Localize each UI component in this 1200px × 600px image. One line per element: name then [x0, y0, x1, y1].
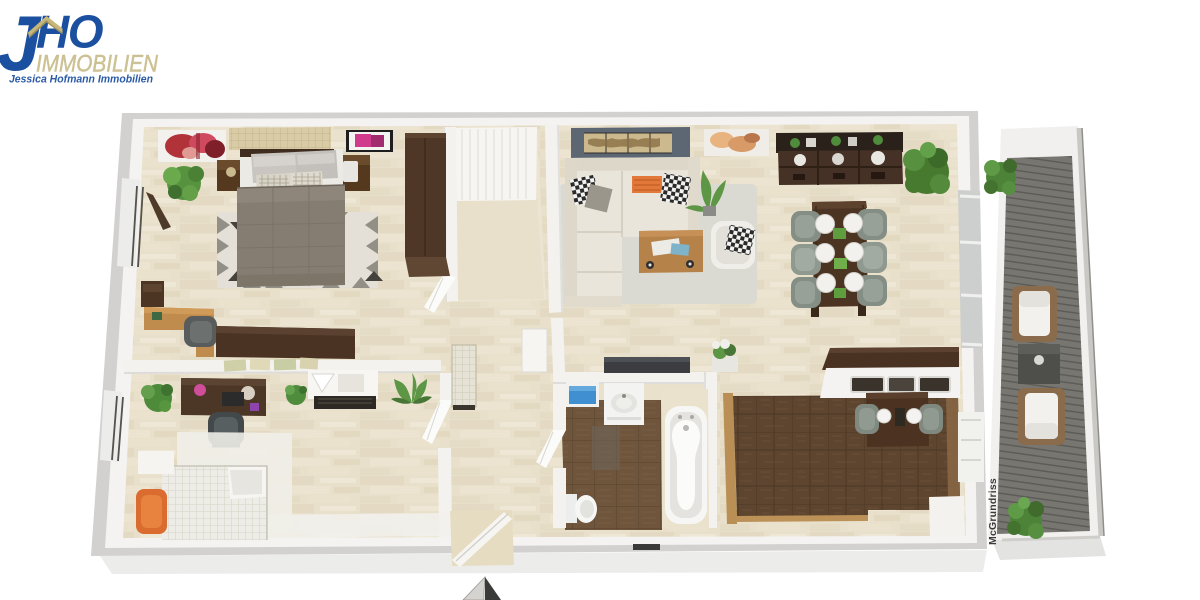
svg-text:McGrundriss: McGrundriss — [987, 478, 999, 545]
svg-text:Jessica Hofmann Immobilien: Jessica Hofmann Immobilien — [9, 74, 153, 86]
